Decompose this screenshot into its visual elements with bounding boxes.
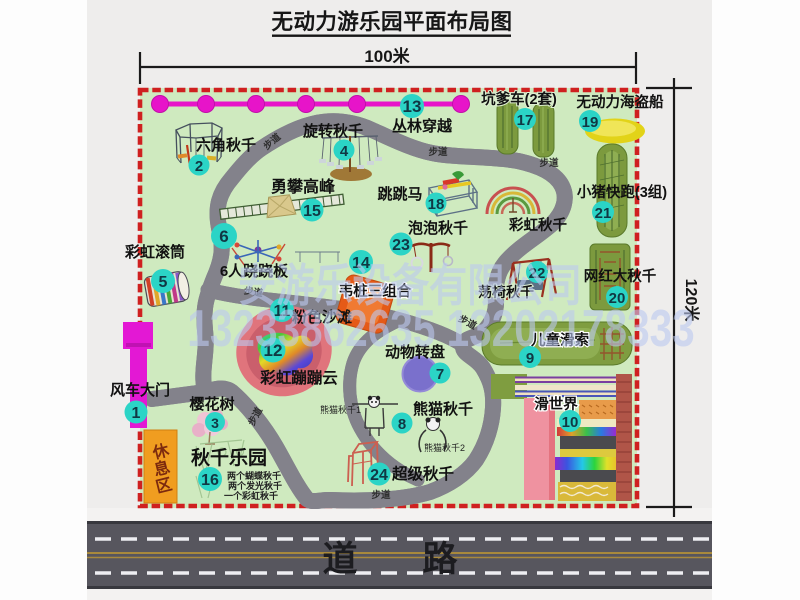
svg-text:步道: 步道 [539,157,559,169]
svg-text:网红大秋千: 网红大秋千 [584,267,657,285]
svg-text:15: 15 [303,203,321,220]
svg-text:六角秋千: 六角秋千 [196,136,256,154]
svg-text:丛林穿越: 丛林穿越 [392,117,453,135]
svg-text:熊猫秋千: 熊猫秋千 [413,400,473,418]
svg-text:21: 21 [595,205,612,222]
svg-text:勇攀高峰: 勇攀高峰 [271,177,336,196]
svg-text:泡泡秋千: 泡泡秋千 [408,219,468,237]
svg-text:道: 道 [322,540,357,579]
svg-text:19: 19 [582,114,599,131]
svg-text:7: 7 [436,366,444,383]
svg-text:23: 23 [392,237,410,254]
svg-text:熊猫秋千1: 熊猫秋千1 [320,404,361,415]
svg-text:小猪快跑(3组): 小猪快跑(3组) [577,183,667,201]
svg-text:3: 3 [211,415,219,431]
svg-text:4: 4 [340,143,349,160]
svg-text:旋转秋千: 旋转秋千 [302,122,363,140]
svg-text:跳跳马: 跳跳马 [377,185,422,203]
svg-text:1: 1 [132,405,141,422]
svg-text:17: 17 [517,112,534,129]
svg-text:两个发光秋千: 两个发光秋千 [228,480,282,491]
svg-text:步道: 步道 [371,489,391,501]
svg-text:10: 10 [562,414,579,431]
svg-text:16: 16 [201,472,219,489]
svg-text:超级秋千: 超级秋千 [391,464,455,483]
svg-text:18: 18 [428,196,445,213]
svg-text:秋千乐园: 秋千乐园 [191,446,267,469]
svg-text:13: 13 [403,97,422,116]
svg-text:坑爹车(2套): 坑爹车(2套) [481,90,557,108]
svg-text:彩虹蹦蹦云: 彩虹蹦蹦云 [259,368,338,387]
svg-text:13233862635 13202178333: 13233862635 13202178333 [187,299,694,357]
svg-text:熊猫秋千2: 熊猫秋千2 [424,442,465,453]
svg-text:一个彩虹秋千: 一个彩虹秋千 [224,490,278,501]
svg-text:樱花树: 樱花树 [189,395,234,413]
svg-text:8: 8 [398,416,406,433]
svg-text:2: 2 [195,158,203,175]
svg-text:步道: 步道 [428,146,448,158]
svg-text:24: 24 [370,467,388,484]
svg-text:路: 路 [422,540,458,579]
svg-text:风车大门: 风车大门 [110,381,170,399]
svg-text:无动力海盗船: 无动力海盗船 [577,93,664,111]
svg-text:彩虹秋千: 彩虹秋千 [508,216,567,234]
svg-text:彩虹滚筒: 彩虹滚筒 [124,243,185,261]
svg-text:5: 5 [159,274,168,291]
svg-text:6: 6 [219,227,228,246]
svg-text:100米: 100米 [364,46,410,66]
svg-text:无动力游乐园平面布局图: 无动力游乐园平面布局图 [272,9,513,34]
svg-text:两个蝴蝶秋千: 两个蝴蝶秋千 [227,470,281,481]
